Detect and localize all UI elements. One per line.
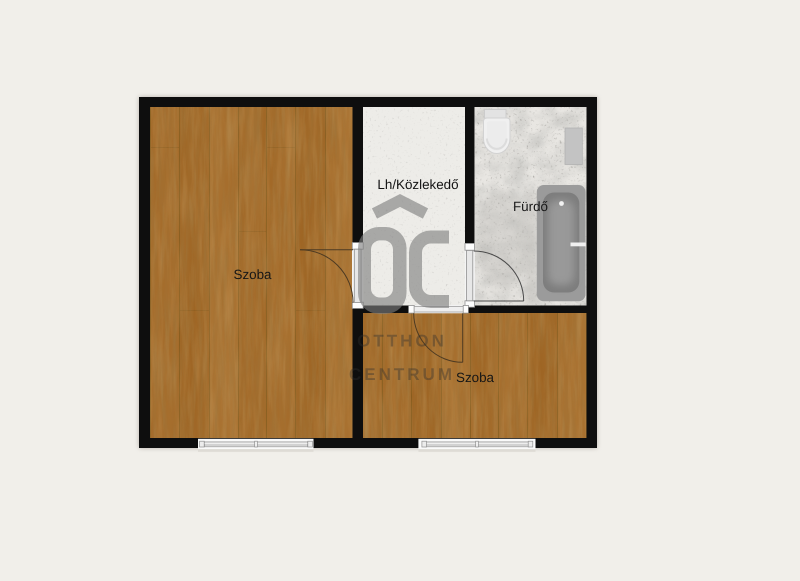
svg-text:Lh/Közlekedő: Lh/Közlekedő — [377, 177, 458, 192]
svg-text:Szoba: Szoba — [456, 370, 495, 385]
svg-text:OTTHON: OTTHON — [357, 332, 447, 351]
svg-text:Szoba: Szoba — [234, 267, 273, 282]
svg-text:CENTRUM: CENTRUM — [349, 365, 455, 384]
svg-text:Fürdő: Fürdő — [513, 199, 548, 214]
